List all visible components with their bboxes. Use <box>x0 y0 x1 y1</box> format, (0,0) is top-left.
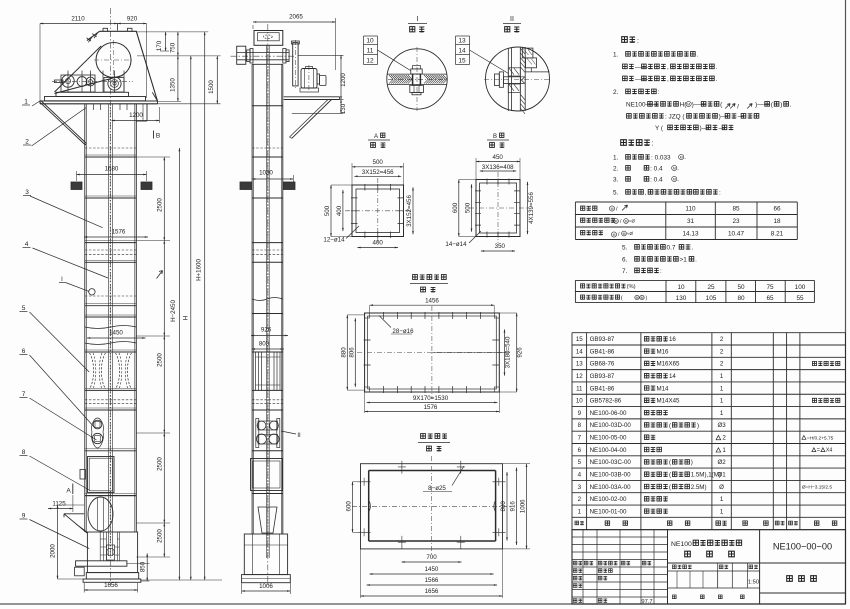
svg-text:3: 3 <box>578 484 582 491</box>
svg-text:GB93-87: GB93-87 <box>590 336 615 343</box>
svg-text:3X152=456: 3X152=456 <box>362 169 394 176</box>
svg-text:1456: 1456 <box>425 298 439 305</box>
svg-text:=: = <box>817 448 820 454</box>
svg-text:1: 1 <box>24 99 28 106</box>
svg-text:100: 100 <box>795 284 806 291</box>
svg-text:13: 13 <box>458 38 466 45</box>
svg-text:1: 1 <box>720 410 724 417</box>
svg-text:600: 600 <box>346 501 353 512</box>
svg-text:85: 85 <box>732 206 740 213</box>
svg-text:1:50: 1:50 <box>748 580 759 586</box>
svg-text:7: 7 <box>578 435 582 442</box>
svg-text:)—: )— <box>700 125 709 132</box>
svg-text:14.13: 14.13 <box>683 231 699 238</box>
svg-text:18: 18 <box>773 218 781 225</box>
svg-text:H+1600: H+1600 <box>196 259 203 281</box>
svg-text:≈Ø: ≈Ø <box>627 231 633 236</box>
svg-text:1: 1 <box>720 508 724 515</box>
svg-text:GB5782-86: GB5782-86 <box>590 398 622 405</box>
svg-text:1.: 1. <box>613 51 619 58</box>
svg-text:NE100-01-00: NE100-01-00 <box>590 508 627 515</box>
svg-text:2: 2 <box>722 435 726 442</box>
svg-text:H−2450: H−2450 <box>170 300 177 322</box>
svg-text:Y (: Y ( <box>655 125 664 132</box>
svg-text:600: 600 <box>452 202 459 213</box>
svg-text:.: . <box>695 256 697 263</box>
svg-text:9: 9 <box>578 410 582 417</box>
svg-text:806: 806 <box>348 347 355 358</box>
svg-text:M: M <box>680 156 683 160</box>
svg-text:,: , <box>667 76 669 83</box>
svg-text:66: 66 <box>773 206 781 213</box>
svg-text:GB41-86: GB41-86 <box>590 348 615 355</box>
svg-text:/: / <box>737 104 739 111</box>
svg-text:14: 14 <box>576 348 583 355</box>
svg-text:50: 50 <box>737 284 745 291</box>
svg-text:NE100-03D-00: NE100-03D-00 <box>590 422 632 429</box>
svg-text:3X180=540: 3X180=540 <box>505 336 512 368</box>
svg-text:)——: )—— <box>755 101 771 108</box>
svg-text:1450: 1450 <box>109 330 123 337</box>
svg-text:400: 400 <box>336 205 343 216</box>
svg-text:3.: 3. <box>613 176 619 183</box>
svg-text:.: . <box>692 244 694 251</box>
svg-text:10.47: 10.47 <box>728 231 744 238</box>
svg-text:Ø: Ø <box>719 484 724 491</box>
svg-text:X4: X4 <box>826 448 832 454</box>
svg-text:880: 880 <box>340 347 347 358</box>
svg-text:31: 31 <box>687 218 695 225</box>
svg-text:1: 1 <box>578 508 582 515</box>
svg-text:5.: 5. <box>622 244 628 251</box>
svg-text:1: 1 <box>720 496 724 503</box>
svg-text:1030: 1030 <box>259 170 273 177</box>
svg-text:5.: 5. <box>613 189 619 196</box>
svg-text:A: A <box>374 134 378 140</box>
svg-text:55: 55 <box>796 295 804 302</box>
svg-text:1.5M),1(M): 1.5M),1(M) <box>691 472 721 479</box>
svg-text:GB41-86: GB41-86 <box>590 385 615 392</box>
svg-text:.: . <box>715 76 717 83</box>
svg-text:130: 130 <box>340 103 347 114</box>
svg-text:.: . <box>715 64 717 71</box>
svg-text:2110: 2110 <box>71 16 85 23</box>
svg-text:80: 80 <box>737 295 745 302</box>
svg-text:I: I <box>417 16 419 23</box>
svg-text:(: ( <box>621 295 623 301</box>
svg-text:A: A <box>66 488 71 495</box>
svg-text:2: 2 <box>720 336 724 343</box>
svg-text:NE100-04-00: NE100-04-00 <box>590 447 627 454</box>
svg-text:H: H <box>182 316 189 320</box>
svg-text:110: 110 <box>685 206 696 213</box>
svg-text::: : <box>660 268 662 275</box>
svg-text:75: 75 <box>766 284 774 291</box>
svg-text:1: 1 <box>720 398 724 405</box>
svg-text:Ø1: Ø1 <box>717 471 726 478</box>
svg-text:10: 10 <box>576 398 583 405</box>
svg-text:M: M <box>636 296 639 300</box>
svg-text:800: 800 <box>259 341 270 348</box>
svg-text:8: 8 <box>578 422 582 429</box>
svg-text:M: M <box>673 178 676 182</box>
svg-text:15: 15 <box>458 58 466 65</box>
svg-text:11: 11 <box>576 385 583 392</box>
svg-text:14−ø14: 14−ø14 <box>445 241 467 248</box>
svg-text:1: 1 <box>722 447 726 454</box>
svg-text:Ø3: Ø3 <box>717 422 726 429</box>
svg-text:M16: M16 <box>656 348 669 355</box>
svg-text:II: II <box>510 16 514 23</box>
svg-text:M: M <box>611 207 614 211</box>
svg-text:≈Ø: ≈Ø <box>629 219 635 224</box>
svg-text:)——: )—— <box>692 101 708 108</box>
svg-text:926: 926 <box>261 327 272 334</box>
svg-text:920: 920 <box>127 16 138 23</box>
svg-text:: 0.4: : 0.4 <box>650 176 663 183</box>
svg-text:8: 8 <box>22 449 26 456</box>
svg-text:,: , <box>645 189 647 196</box>
svg-text:10: 10 <box>366 38 374 45</box>
svg-text:NE100−00−00: NE100−00−00 <box>773 542 832 552</box>
svg-text:2.: 2. <box>613 165 619 172</box>
svg-text:2.: 2. <box>613 89 619 96</box>
svg-text:M14: M14 <box>656 385 669 392</box>
svg-text:2500: 2500 <box>156 529 163 543</box>
svg-text:8−ø25: 8−ø25 <box>428 485 446 492</box>
svg-text:916: 916 <box>510 501 517 512</box>
svg-text:1: 1 <box>720 373 724 380</box>
svg-text:8.21: 8.21 <box>771 231 784 238</box>
svg-text:450: 450 <box>493 154 504 161</box>
svg-text:NE100-02-00: NE100-02-00 <box>590 496 627 503</box>
svg-text:M: M <box>613 233 616 237</box>
svg-text:M: M <box>641 296 644 300</box>
svg-text:3X152=456: 3X152=456 <box>406 195 413 227</box>
svg-text:2.5M): 2.5M) <box>691 484 707 491</box>
svg-text:Ø2: Ø2 <box>717 459 726 466</box>
svg-text:): ) <box>691 459 693 466</box>
svg-text:: 0.4: : 0.4 <box>650 165 663 172</box>
svg-text:NE100: NE100 <box>671 541 692 548</box>
svg-text:13: 13 <box>576 361 583 368</box>
svg-text:65: 65 <box>766 295 774 302</box>
svg-text:16: 16 <box>669 336 676 343</box>
svg-text:5: 5 <box>22 305 26 312</box>
svg-text:): ) <box>780 101 782 108</box>
svg-text::: : <box>651 138 653 147</box>
svg-text:400: 400 <box>373 240 384 247</box>
svg-text:10: 10 <box>677 284 685 291</box>
svg-text:500: 500 <box>465 202 472 213</box>
svg-text:1200: 1200 <box>340 73 347 87</box>
svg-text:(%): (%) <box>627 284 636 290</box>
svg-text:M: M <box>625 220 628 224</box>
svg-text:5: 5 <box>578 459 582 466</box>
svg-text:1006: 1006 <box>520 499 527 513</box>
svg-text:1656: 1656 <box>425 588 439 595</box>
svg-text:1450: 1450 <box>425 566 439 573</box>
svg-text:2500: 2500 <box>156 457 163 471</box>
svg-text:4: 4 <box>578 471 582 478</box>
svg-text:12−ø14: 12−ø14 <box>323 237 345 244</box>
svg-text:23: 23 <box>732 218 740 225</box>
svg-text:GB68-76: GB68-76 <box>590 361 615 368</box>
svg-text:1: 1 <box>720 385 724 392</box>
svg-text:1006: 1006 <box>259 583 273 590</box>
svg-text:1576: 1576 <box>424 404 438 411</box>
svg-text:2000: 2000 <box>50 544 57 558</box>
svg-text:Ø=H−3.15/2.5: Ø=H−3.15/2.5 <box>802 485 832 491</box>
svg-text:1350: 1350 <box>169 78 176 92</box>
svg-text:926: 926 <box>517 347 524 358</box>
svg-text::: : <box>719 189 721 196</box>
svg-text:14: 14 <box>669 373 676 380</box>
svg-text:7.: 7. <box>622 268 628 275</box>
svg-text:NE100-06-00: NE100-06-00 <box>590 410 627 417</box>
svg-text:9: 9 <box>22 513 26 520</box>
svg-text:>1: >1 <box>680 256 688 263</box>
svg-text::: : <box>637 38 639 45</box>
svg-text:M: M <box>615 220 618 224</box>
svg-text:B: B <box>493 134 497 140</box>
svg-text::: : <box>658 89 660 96</box>
svg-text:1125: 1125 <box>52 501 66 508</box>
svg-text:6: 6 <box>22 348 26 355</box>
svg-text:500: 500 <box>324 205 331 216</box>
svg-text:3: 3 <box>25 189 29 196</box>
svg-text:GB93-87: GB93-87 <box>590 373 615 380</box>
svg-text:6.: 6. <box>622 256 628 263</box>
svg-text:.: . <box>697 51 699 58</box>
svg-text:1500: 1500 <box>208 80 215 94</box>
svg-text:2: 2 <box>25 139 29 146</box>
svg-text:)—: )— <box>719 113 728 120</box>
svg-text:: JZQ (: : JZQ ( <box>665 113 685 120</box>
svg-text:750: 750 <box>169 42 176 53</box>
svg-text:1680: 1680 <box>105 166 119 173</box>
svg-text:NE100-03B-00: NE100-03B-00 <box>590 471 631 478</box>
svg-text:2: 2 <box>578 496 582 503</box>
svg-text:850: 850 <box>140 561 147 572</box>
svg-text:M16X65: M16X65 <box>656 361 680 368</box>
svg-text:9X170=1530: 9X170=1530 <box>413 395 449 402</box>
svg-text:B: B <box>156 133 160 140</box>
svg-text:7: 7 <box>22 391 26 398</box>
svg-text:800: 800 <box>500 501 507 512</box>
svg-text:500: 500 <box>373 159 384 166</box>
svg-text:3X136=408: 3X136=408 <box>482 164 514 171</box>
svg-text:=H/0.2+5.75: =H/0.2+5.75 <box>807 435 834 441</box>
svg-text:700: 700 <box>426 554 437 561</box>
svg-text:0.7: 0.7 <box>667 244 676 251</box>
svg-text:M: M <box>673 167 676 171</box>
svg-text:4X139=556: 4X139=556 <box>528 192 535 224</box>
svg-text:: 0.033: : 0.033 <box>651 154 671 161</box>
svg-text:97.7: 97.7 <box>641 599 652 605</box>
svg-text:.: . <box>790 101 792 108</box>
svg-text:11: 11 <box>367 48 374 55</box>
svg-text:,: , <box>667 64 669 71</box>
svg-text:350: 350 <box>495 243 506 250</box>
svg-text:6: 6 <box>578 447 582 454</box>
svg-text:25: 25 <box>707 284 715 291</box>
svg-text:1200: 1200 <box>129 112 143 119</box>
svg-text:NE100-03A-00: NE100-03A-00 <box>590 484 631 491</box>
svg-text:14: 14 <box>458 48 466 55</box>
svg-text:II: II <box>297 433 301 439</box>
svg-text:2500: 2500 <box>156 353 163 367</box>
svg-text:NE100-03C-00: NE100-03C-00 <box>590 459 632 466</box>
svg-text:1656: 1656 <box>104 582 118 589</box>
svg-text:15: 15 <box>576 336 583 343</box>
svg-text:170: 170 <box>156 40 163 51</box>
svg-text:1576: 1576 <box>112 229 126 236</box>
svg-text:1566: 1566 <box>425 577 439 584</box>
svg-text:2: 2 <box>720 361 724 368</box>
svg-text:M: M <box>687 103 690 107</box>
svg-text:M: M <box>623 232 626 236</box>
svg-text:12: 12 <box>366 58 374 65</box>
svg-text:12: 12 <box>576 373 583 380</box>
svg-text:): ) <box>697 422 699 429</box>
svg-text:4: 4 <box>25 241 29 248</box>
svg-text:NE100——: NE100—— <box>626 101 659 108</box>
svg-text:105: 105 <box>706 295 717 302</box>
svg-text:130: 130 <box>676 295 687 302</box>
svg-text:NE100-05-00: NE100-05-00 <box>590 435 627 442</box>
svg-text:2065: 2065 <box>289 14 303 21</box>
svg-text:M14X45: M14X45 <box>656 398 680 405</box>
svg-text:2: 2 <box>720 348 724 355</box>
svg-text:1.: 1. <box>613 154 619 161</box>
svg-text:2500: 2500 <box>156 198 163 212</box>
